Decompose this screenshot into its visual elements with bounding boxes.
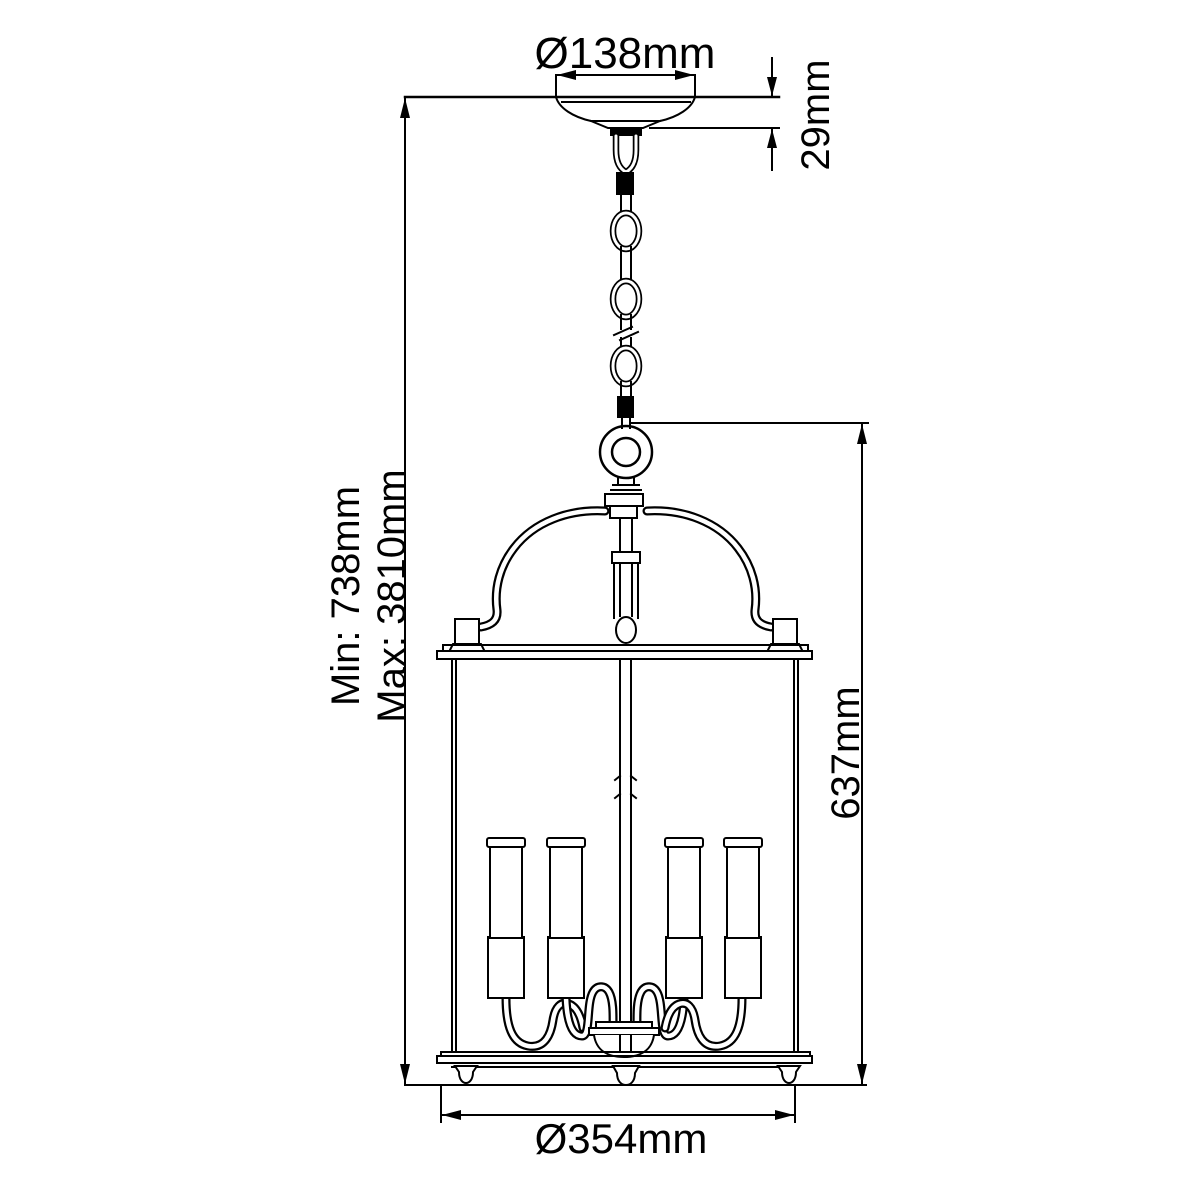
max-drop-label: Max: 3810mm: [371, 446, 413, 746]
lantern-diameter-label: Ø354mm: [471, 1118, 771, 1160]
ceiling-canopy: [556, 97, 695, 195]
canopy-diameter-label: Ø138mm: [475, 32, 775, 76]
finial-knob: [613, 1066, 639, 1085]
min-drop-label: Min: 738mm: [325, 466, 367, 726]
arrow-right-icon: [775, 1110, 794, 1120]
arrow-down-icon: [400, 1064, 410, 1084]
arm-foot: [773, 619, 797, 644]
candle: [724, 838, 762, 998]
candle: [665, 838, 703, 998]
eye-ring: [600, 426, 652, 494]
hanging-chain: [613, 195, 639, 428]
chain-break-mark: [614, 327, 638, 340]
arm-foot: [455, 619, 479, 644]
candle: [547, 838, 585, 998]
chain-connector: [617, 396, 634, 418]
arrow-up-icon: [857, 424, 867, 444]
chain-connector: [616, 172, 634, 195]
glass-wall-right: [794, 659, 798, 1052]
finial-knob: [455, 1066, 477, 1083]
arrow-up-icon: [400, 98, 410, 118]
finial-knob: [778, 1066, 800, 1083]
arrow-down-icon: [767, 77, 777, 96]
center-rod: [620, 659, 631, 1024]
canopy-height-label: 29mm: [796, 45, 836, 185]
arrow-down-icon: [857, 1064, 867, 1084]
candles: [487, 838, 762, 998]
arrow-up-icon: [767, 129, 777, 148]
bottom-plate: [437, 1052, 812, 1085]
lantern-height-label: 637mm: [826, 673, 866, 833]
center-column: [605, 494, 643, 643]
arrow-left-icon: [442, 1110, 461, 1120]
candle: [487, 838, 525, 998]
lantern-dimension-diagram: [0, 0, 1200, 1200]
glass-wall-left: [452, 659, 456, 1052]
